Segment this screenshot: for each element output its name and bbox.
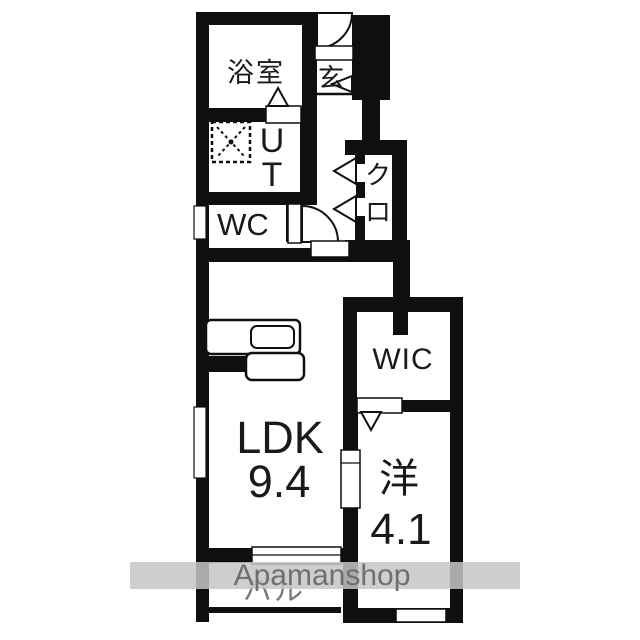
closet-label-1: ク <box>365 160 391 190</box>
western-room-window <box>396 609 446 622</box>
wall-left-outer <box>196 12 209 622</box>
wall-outer-step <box>362 95 380 145</box>
toilet-label: WC <box>217 207 269 242</box>
closet-label-2: ロ <box>365 197 391 227</box>
wall-closet-left-b <box>356 182 365 198</box>
utility-label-u: U <box>260 122 285 160</box>
bathroom-door-triangle-icon <box>268 88 288 106</box>
entry-door-arc <box>317 13 352 48</box>
wic-door-triangle-icon <box>361 412 381 430</box>
wc-door-arc <box>302 206 338 242</box>
western-room-door <box>341 450 360 508</box>
wall-top <box>196 12 317 25</box>
wall-utility-right <box>300 107 317 195</box>
entry-step <box>315 46 353 60</box>
wic-opening <box>357 398 402 413</box>
balcony-rail <box>196 607 341 613</box>
utility-label-t: T <box>262 156 283 194</box>
watermark: Apamanshop <box>130 559 520 592</box>
wall-bathroom-right <box>302 12 317 122</box>
kitchen-sink-icon <box>251 326 294 348</box>
bathroom-door-opening <box>266 106 301 123</box>
bathroom-label: 浴室 <box>227 58 285 88</box>
ldk-window <box>194 407 206 478</box>
wc-door-panel <box>288 204 301 243</box>
kitchen-counter-icon <box>205 320 304 380</box>
washing-machine-pan-icon <box>212 122 250 162</box>
wc-window <box>194 206 206 239</box>
closet-door-triangle-icon <box>334 158 356 184</box>
floorplan-page: 浴室 玄 U T WC ク ロ WIC LDK 9.4 洋 4.1 バル Apa… <box>0 0 640 640</box>
wall-wic-stub <box>393 312 408 335</box>
hall-ldk-door <box>311 241 349 257</box>
closet-door-triangle-icon <box>334 196 356 222</box>
wall-wic-top <box>343 297 463 312</box>
entrance-label: 玄 <box>318 63 344 93</box>
western-room-label: 洋 <box>379 457 419 501</box>
wall-closet-right <box>392 140 407 253</box>
wic-label: WIC <box>372 343 433 376</box>
watermark-text: Apamanshop <box>234 559 411 592</box>
floorplan-drawing: 浴室 玄 U T WC ク ロ WIC LDK 9.4 洋 4.1 バル Apa… <box>0 0 640 640</box>
wall-ldk-wic <box>343 312 357 412</box>
wall-entrance-right <box>352 15 390 100</box>
wall-ldk-top <box>196 248 410 262</box>
ldk-area: 9.4 <box>248 456 311 507</box>
wall-utility-wc <box>196 192 317 205</box>
western-room-area: 4.1 <box>370 505 431 554</box>
